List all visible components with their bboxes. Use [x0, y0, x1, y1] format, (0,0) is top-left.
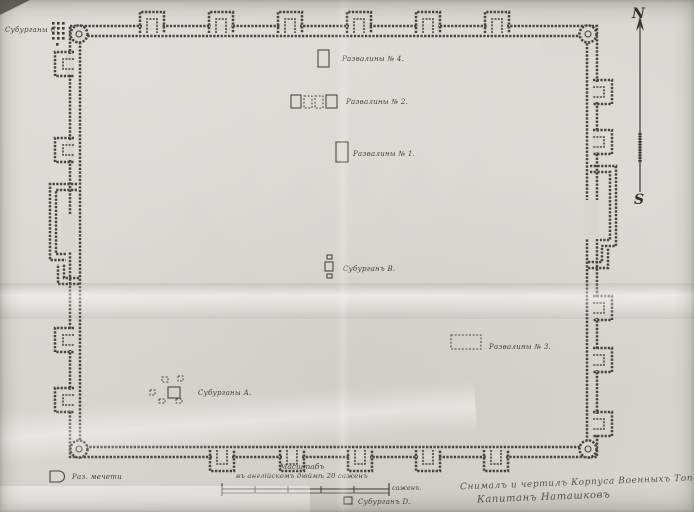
east-gate-lower-inner-wall — [588, 248, 602, 262]
wall-inner-line — [80, 36, 587, 447]
tower-opening — [66, 140, 74, 160]
suburgany-c-dot — [57, 22, 60, 25]
suburgany-c-dot — [62, 22, 65, 25]
wall-tower — [55, 328, 74, 352]
ruins-2-block — [315, 96, 323, 108]
suburgany-c-dot — [62, 32, 65, 35]
tower-opening — [418, 23, 438, 31]
suburgany-c-dot — [52, 22, 55, 25]
wall-tower — [592, 130, 612, 154]
suburgany-c-dot — [56, 43, 59, 46]
tower-opening — [282, 452, 302, 460]
suburgan-b-part — [327, 274, 332, 278]
suburgany-a-part — [150, 390, 155, 395]
ruins-1-symbol — [336, 142, 348, 162]
wall-tower — [592, 348, 612, 372]
suburgany-a-center — [168, 387, 180, 398]
wall-tower — [416, 12, 440, 33]
label-suburgan-d: Субурганъ D. — [358, 499, 411, 506]
wall-tower — [209, 12, 233, 33]
scale-bar — [222, 483, 389, 496]
wall-tower — [278, 12, 302, 33]
tower-opening — [592, 298, 600, 318]
label-ruins-3: Развалины № 3. — [489, 344, 551, 351]
compass-south-label: S — [634, 193, 644, 207]
corner-tower-ne — [580, 26, 597, 43]
scale-title: Масштабъ — [252, 462, 352, 471]
tower-opening — [142, 23, 162, 31]
wall-outer-line — [70, 26, 597, 457]
wall-tower — [140, 12, 164, 33]
scale-unit-label: саженъ. — [392, 484, 421, 492]
tower-opening — [280, 23, 300, 31]
suburgany-c-dot — [57, 37, 60, 40]
label-ruins-2: Развалины № 2. — [346, 99, 408, 106]
corner-towers — [71, 26, 597, 458]
suburgan-d-symbol — [344, 497, 352, 504]
corner-tower-sw — [71, 441, 88, 458]
west-gate — [50, 184, 79, 284]
label-suburgan-b: Субурганъ В. — [343, 266, 395, 273]
wall-tower — [55, 52, 74, 76]
scale-subtitle: въ англійскомъ дюймѣ 20 саженъ — [210, 472, 394, 480]
ruins-2-block — [304, 96, 312, 108]
east-gate — [584, 166, 616, 268]
ruins-2-symbol — [291, 95, 337, 108]
tower-opening — [592, 132, 600, 152]
tower-opening — [66, 390, 74, 410]
wall-tower — [347, 12, 371, 33]
tower-opening — [592, 82, 600, 102]
corner-tower-nw — [71, 26, 88, 43]
tower-opening — [211, 23, 231, 31]
east-gate-opening — [584, 200, 599, 238]
suburgan-b-part — [325, 262, 333, 271]
label-suburgany-a: Субурганы А. — [198, 390, 252, 397]
wall-tower — [55, 138, 74, 162]
west-gate-lower-outer-wall — [58, 264, 79, 284]
tower-opening — [66, 330, 74, 350]
label-suburgany-c: Субурганы С. — [5, 27, 59, 34]
label-ruins-1: Развалины № 1. — [353, 151, 415, 158]
wall-tower — [210, 450, 234, 471]
west-gate-opening — [61, 214, 76, 252]
ruins-3-symbol — [451, 335, 481, 349]
wall-tower — [485, 12, 509, 33]
west-gate-lower-inner-wall — [64, 264, 79, 278]
tower-opening — [592, 350, 600, 370]
scanned-plan-page: Субурганы С. Развалины № 4. Развалины № … — [0, 0, 694, 512]
suburgany-a-part — [159, 399, 165, 403]
ruins-2-block — [291, 95, 301, 108]
corner-tower-se — [580, 441, 597, 458]
tower-opening — [487, 23, 507, 31]
suburgany-a-part — [176, 399, 182, 403]
wall-tower — [416, 450, 440, 471]
tower-opening — [66, 54, 74, 74]
mosque-ruins-legend-symbol — [50, 471, 65, 482]
fortress-plan-drawing — [0, 0, 694, 512]
suburgan-b-symbol — [325, 255, 333, 278]
wall-towers — [55, 12, 612, 471]
compass-north-label: N — [632, 7, 645, 21]
tower-opening — [212, 452, 232, 460]
wall-tower — [55, 388, 74, 412]
north-arrow — [636, 16, 644, 192]
suburgany-c-dot — [62, 27, 65, 30]
tower-opening — [418, 452, 438, 460]
tower-opening — [486, 452, 506, 460]
tower-opening — [349, 23, 369, 31]
suburgany-a-part — [162, 377, 168, 382]
suburgany-a-part — [178, 376, 183, 381]
wall-tower — [592, 412, 612, 436]
wall-tower — [592, 296, 612, 320]
label-ruins-4: Развалины № 4. — [342, 56, 404, 63]
ruins-4-symbol — [318, 50, 329, 67]
tower-opening — [592, 414, 600, 434]
fortress-wall — [70, 26, 597, 457]
label-mosque-ruins-legend: Раз. мечети — [72, 474, 122, 481]
suburgan-b-part — [327, 255, 332, 259]
map-symbols — [50, 22, 481, 504]
tower-opening — [350, 452, 370, 460]
wall-tower — [592, 80, 612, 104]
suburgany-a-symbol — [150, 376, 183, 403]
ruins-2-block — [326, 95, 337, 108]
wall-tower — [484, 450, 508, 471]
suburgany-c-dot — [52, 37, 55, 40]
suburgany-c-dot — [62, 37, 65, 40]
